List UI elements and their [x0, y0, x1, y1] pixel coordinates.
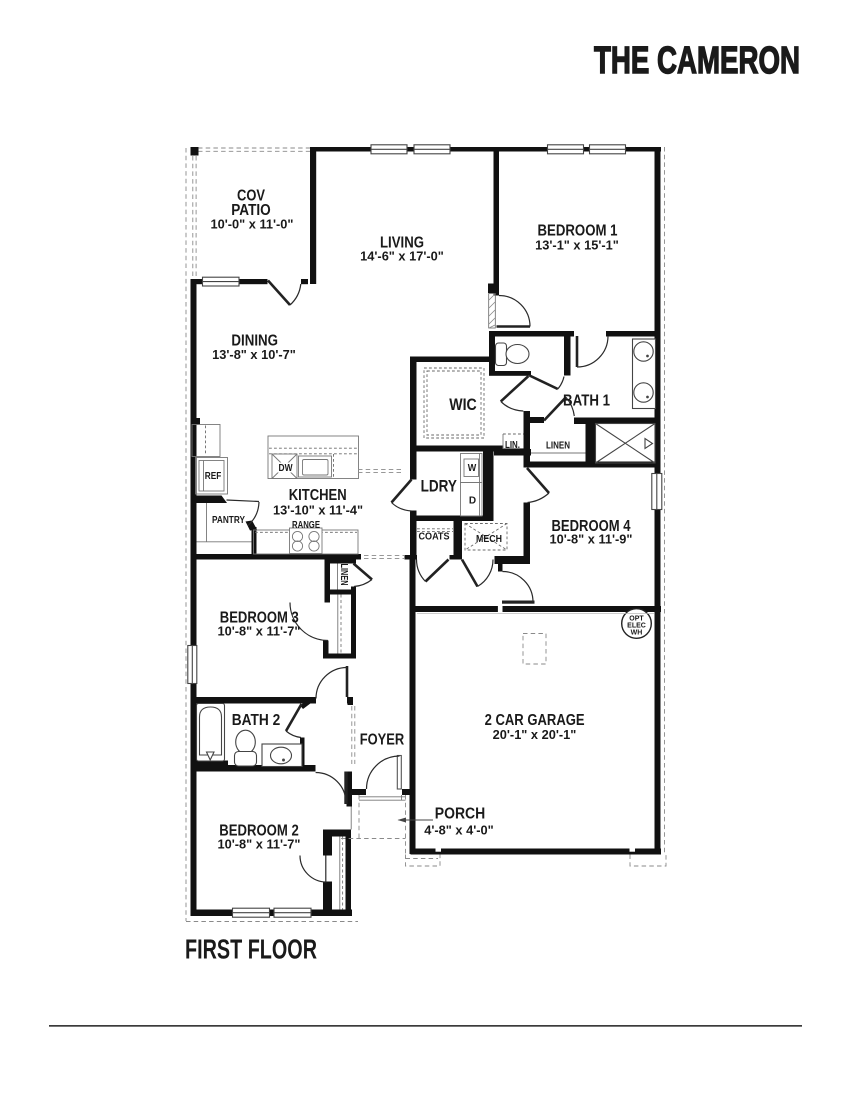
svg-text:ELEC: ELEC [627, 623, 646, 630]
svg-text:LIN.: LIN. [505, 440, 520, 451]
svg-text:KITCHEN: KITCHEN [289, 487, 347, 504]
svg-text:FIRST FLOOR: FIRST FLOOR [185, 934, 317, 965]
svg-text:DW: DW [279, 463, 293, 474]
svg-text:OPT: OPT [629, 616, 644, 623]
svg-text:13'-1" x 15'-1": 13'-1" x 15'-1" [535, 238, 619, 253]
svg-text:13'-10" x 11'-4": 13'-10" x 11'-4" [273, 503, 363, 518]
svg-text:14'-6" x 17'-0": 14'-6" x 17'-0" [360, 249, 444, 264]
svg-text:RANGE: RANGE [292, 519, 320, 531]
svg-text:LINEN: LINEN [546, 440, 570, 452]
svg-text:PORCH: PORCH [435, 806, 486, 823]
svg-text:BATH 1: BATH 1 [563, 393, 610, 410]
svg-text:THE CAMERON: THE CAMERON [594, 40, 800, 82]
svg-text:10'-0" x 11'-0": 10'-0" x 11'-0" [211, 217, 294, 232]
svg-text:D: D [469, 496, 476, 507]
svg-text:COATS: COATS [419, 531, 450, 543]
svg-text:REF: REF [205, 470, 222, 482]
svg-text:WIC: WIC [449, 396, 477, 414]
svg-text:13'-8" x 10'-7": 13'-8" x 10'-7" [212, 347, 296, 362]
svg-text:LINEN: LINEN [338, 564, 349, 586]
svg-text:10'-8" x 11'-7": 10'-8" x 11'-7" [218, 624, 301, 639]
svg-text:10'-8" x 11'-9": 10'-8" x 11'-9" [550, 532, 633, 547]
svg-text:4'-8" x 4'-0": 4'-8" x 4'-0" [424, 823, 493, 838]
svg-text:PANTRY: PANTRY [212, 514, 245, 526]
svg-text:FOYER: FOYER [360, 732, 405, 749]
svg-text:WH: WH [631, 630, 643, 637]
svg-text:BATH 2: BATH 2 [232, 712, 281, 729]
svg-text:MECH: MECH [476, 533, 502, 545]
svg-text:20'-1" x 20'-1": 20'-1" x 20'-1" [493, 727, 577, 742]
svg-text:W: W [468, 463, 477, 474]
svg-text:10'-8" x 11'-7": 10'-8" x 11'-7" [218, 837, 301, 852]
svg-text:LDRY: LDRY [421, 477, 458, 496]
